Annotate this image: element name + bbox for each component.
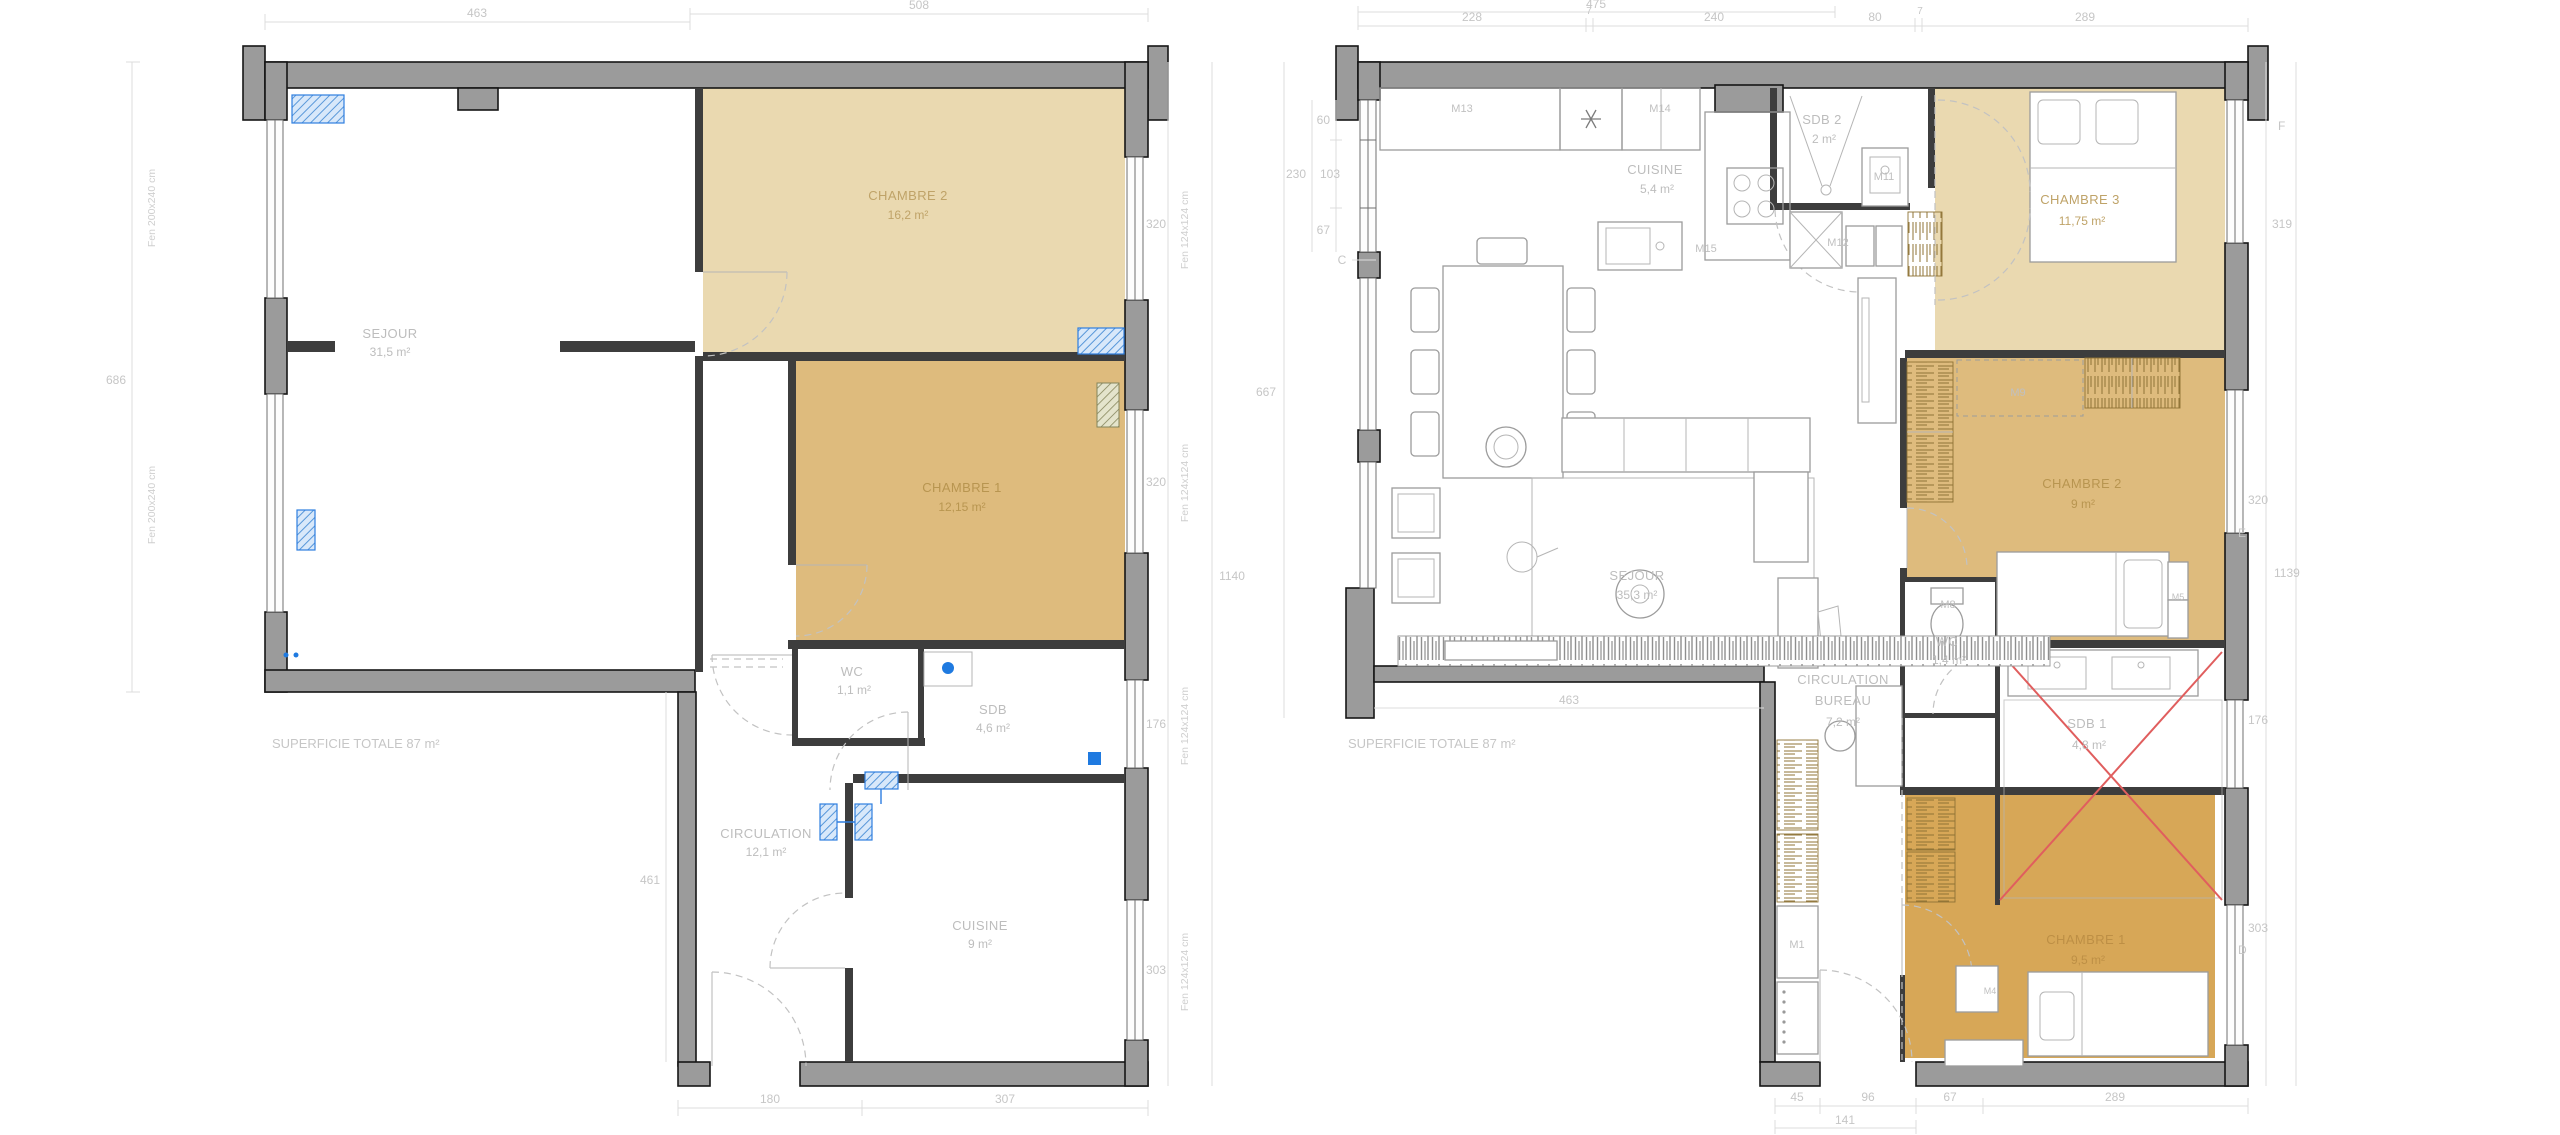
chair [1567,288,1595,332]
chair [1411,288,1439,332]
floor-plan-right: M13 M14 M15 M11 M12 M9 M8 M5 M4 M1 CUISI… [1256,0,2300,1134]
window-marker-icon [292,95,344,123]
plumbing-marker-icon [820,804,837,840]
room-label: CHAMBRE 3 [2040,192,2119,207]
section-marker: C [1338,253,1347,267]
dim: 7 [1586,6,1592,17]
window-size-label: Fen 200x240 cm [146,466,158,544]
bed [2030,92,2176,262]
plumbing-marker-icon [865,772,898,789]
module-label: M5 [2172,592,2185,602]
dim: 103 [1320,167,1340,181]
room-label: CUISINE [1627,162,1683,177]
room-area: 5,4 m² [1640,182,1674,196]
pouf [1392,488,1440,538]
room-label: CIRCULATION [1797,672,1889,687]
sink [1606,228,1650,264]
rp-kitchen [1380,88,1790,270]
dim: 320 [2248,493,2268,507]
dim: 67 [1943,1090,1957,1104]
room-label: SDB [979,702,1007,717]
room-area: 12,1 m² [746,845,787,859]
bed [1997,552,2169,636]
room-area: 4,8 m² [2072,738,2106,752]
storage-shelves [1777,740,1818,830]
room-area: 16,2 m² [888,208,929,222]
dim: 463 [467,6,487,20]
dim: 67 [1317,223,1331,237]
room-label: SDB 2 [1802,112,1842,127]
window-size-label: Fen 124x124 cm [1179,687,1191,765]
dim: 176 [2248,713,2268,727]
lp-room-fills [703,88,1125,640]
superficie-total: SUPERFICIE TOTALE 87 m² [272,736,440,751]
room-area: 7,2 m² [1826,715,1860,729]
dim: 141 [1835,1113,1855,1127]
tv-unit [1858,278,1896,423]
kitchen-counter [1380,88,1560,150]
wardrobe [1907,852,1955,902]
floor-plans-page: SEJOUR 31,5 m² CHAMBRE 2 16,2 m² CHAMBRE… [0,0,2560,1135]
module-label: M8 [1940,599,1955,611]
module-label: M14 [1649,103,1670,115]
dim: 319 [2272,217,2292,231]
dim: 240 [1704,10,1724,24]
module-label: M15 [1695,243,1716,255]
module-label: M9 [2010,387,2025,399]
room-label: CHAMBRE 1 [2046,932,2125,947]
room-area: 1,1 m² [837,683,871,697]
pouf [1392,553,1440,603]
storage-shelves [1777,834,1818,902]
room-area: 31,5 m² [370,345,411,359]
sofa-chaise [1754,472,1808,562]
section-marker: D [2238,943,2247,957]
snowflake-icon [1581,110,1601,128]
plumbing-marker-icon [855,804,872,840]
dim: 508 [909,0,929,12]
room-area: 12,15 m² [938,500,985,514]
vent-marker-icon [1097,383,1119,427]
dim: 461 [640,873,660,887]
room-area: 11,75 m² [2059,214,2105,228]
dim: 686 [106,373,126,387]
module-label: M1 [1789,939,1804,951]
room-area: 9,5 m² [2071,953,2105,967]
room-label: SEJOUR [1609,568,1664,583]
chair [1567,350,1595,394]
window-size-label: Fen 200x240 cm [146,169,158,247]
room-label: CHAMBRE 1 [922,480,1001,495]
dim: 303 [2248,921,2268,935]
dim: 230 [1286,167,1306,181]
dim: 667 [1256,385,1276,399]
dim: 289 [2105,1090,2125,1104]
room-area: 35,3 m² [1617,588,1658,602]
room-area: 4,6 m² [976,721,1010,735]
dim: 7 [1917,6,1923,17]
shelf-tray [1445,641,1557,660]
dim: 45 [1790,1090,1804,1104]
bed [2028,972,2208,1056]
dim: 320 [1146,217,1166,231]
drain-point-icon [942,662,954,674]
chair [1411,350,1439,394]
module-label: M12 [1827,237,1848,249]
room-label: SDB 1 [2067,716,2107,731]
dim: 180 [760,1092,780,1106]
room-label: BUREAU [1815,693,1872,708]
rp-corridor [1777,686,1912,1062]
dim: 96 [1861,1090,1875,1104]
dim: 289 [2075,10,2095,24]
module-label: M11 [1874,171,1895,183]
window-size-label: Fen 124x124 cm [1179,933,1191,1011]
room-label: SEJOUR [362,326,417,341]
window-size-label: Fen 124x124 cm [1179,191,1191,269]
dim: 463 [1559,693,1579,707]
chair [1411,412,1439,456]
kitchen-counter-leg [1705,112,1790,260]
room-label: CIRCULATION [720,826,812,841]
room-area: 1,4 m² [1932,653,1966,667]
room-label: WC [1936,634,1958,649]
dim: 176 [1146,717,1166,731]
wardrobe [1907,798,1955,850]
window-marker-icon [1078,328,1124,354]
section-marker: E [2238,526,2246,540]
window-size-label: Fen 124x124 cm [1179,444,1191,522]
room-area: 2 m² [1812,132,1836,146]
room-area: 9 m² [968,937,992,951]
drain-point-icon [1088,752,1101,765]
module-label: M4 [1984,986,1997,996]
dim: 307 [995,1092,1015,1106]
chair [1477,238,1527,264]
room-label: WC [841,664,863,679]
room-label: CHAMBRE 2 [2042,476,2121,491]
dining-table [1443,266,1563,478]
kitchen-island [1598,222,1682,270]
bench [1945,1040,2023,1066]
wardrobe [1908,212,1942,276]
dim: 303 [1146,963,1166,977]
window-marker-icon [297,510,315,550]
dim: 1140 [1219,569,1245,583]
room-label: CHAMBRE 2 [868,188,947,203]
room-area: 9 m² [2071,497,2095,511]
dim: 80 [1868,10,1882,24]
room-label: CUISINE [952,918,1008,933]
dim: 60 [1317,113,1331,127]
rp-sdb2 [1775,96,1942,292]
module-label: M13 [1451,103,1472,115]
floor-plans-drawing: SEJOUR 31,5 m² CHAMBRE 2 16,2 m² CHAMBRE… [0,0,2560,1135]
superficie-total: SUPERFICIE TOTALE 87 m² [1348,736,1516,751]
dim: 1139 [2274,566,2300,580]
dim: 320 [1146,475,1166,489]
section-marker: F [2278,119,2285,133]
dim: 228 [1462,10,1482,24]
floor-plan-left: SEJOUR 31,5 m² CHAMBRE 2 16,2 m² CHAMBRE… [106,0,1245,1116]
